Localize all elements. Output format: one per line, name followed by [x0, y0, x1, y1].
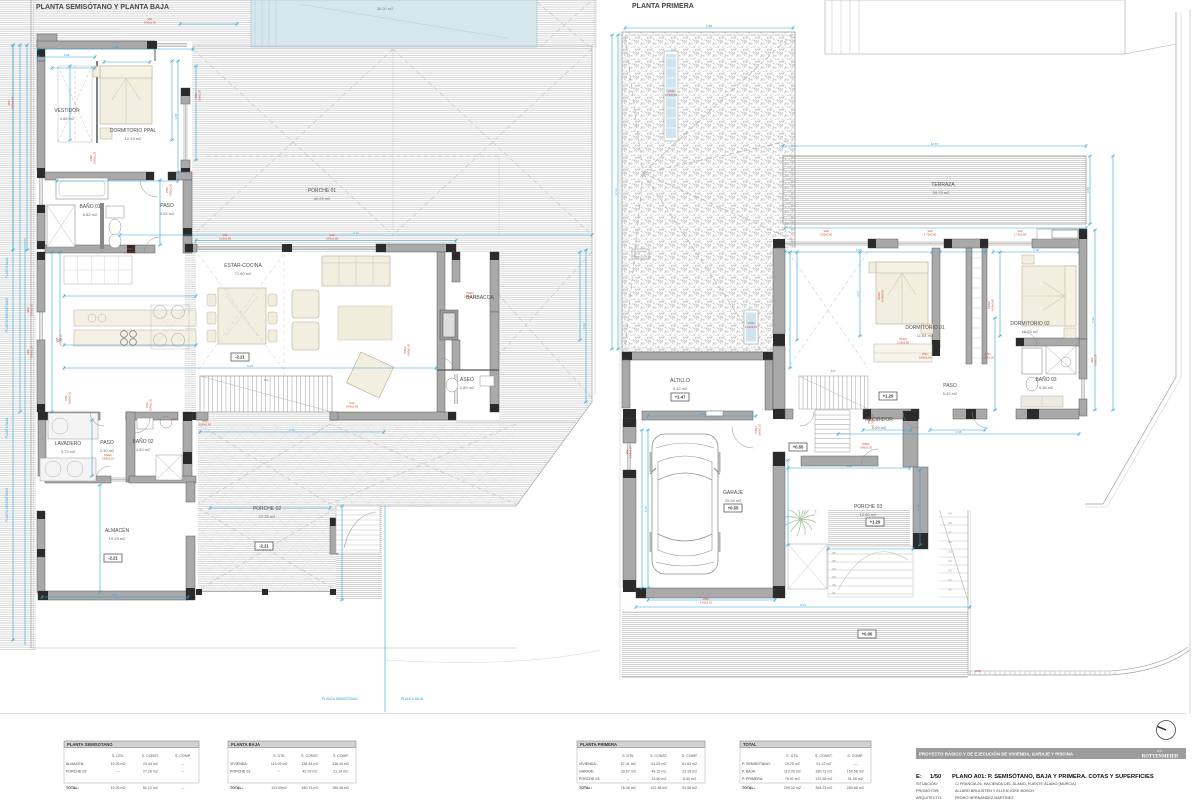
svg-text:29.26 m2: 29.26 m2 — [725, 498, 742, 503]
svg-text:2.89 m2: 2.89 m2 — [460, 385, 475, 390]
svg-text:39.67 m2: 39.67 m2 — [621, 770, 636, 774]
svg-text:TOTAL:: TOTAL: — [579, 786, 592, 790]
svg-text:0.90x2.20: 0.90x2.20 — [197, 89, 201, 102]
svg-text:ALLARD BRUIJSTEN Y ELLEN JOKE: ALLARD BRUIJSTEN Y ELLEN JOKE BOSCH — [955, 789, 1034, 793]
svg-text:0.90x2.20: 0.90x2.20 — [29, 303, 33, 316]
svg-text:06: 06 — [948, 540, 952, 544]
svg-text:BARBACOA: BARBACOA — [466, 295, 494, 301]
svg-text:MYL: MYL — [1157, 750, 1164, 753]
svg-text:36.00 m2: 36.00 m2 — [377, 6, 394, 11]
svg-text:ALMACÉN:: ALMACÉN: — [66, 761, 84, 766]
svg-text:138.44 m2: 138.44 m2 — [301, 762, 318, 766]
svg-text:19.25 m2: 19.25 m2 — [109, 536, 126, 541]
svg-text:TOTAL:: TOTAL: — [66, 786, 79, 790]
svg-text:12.15 m2: 12.15 m2 — [125, 136, 142, 141]
svg-text:+1.29: +1.29 — [870, 520, 881, 525]
svg-text:PASO: PASO — [100, 440, 114, 446]
svg-text:PEDRO HERNÁNDEZ MARTÍNEZ: PEDRO HERNÁNDEZ MARTÍNEZ — [955, 796, 1014, 800]
svg-text:29.73 m2: 29.73 m2 — [933, 190, 950, 195]
svg-text:PLANTA BAJA: PLANTA BAJA — [5, 257, 9, 279]
svg-text:ESTAR-COCINA: ESTAR-COCINA — [224, 263, 262, 269]
svg-text:06: 06 — [832, 551, 836, 555]
svg-text:PORCHE 02: PORCHE 02 — [253, 506, 282, 512]
svg-text:17.23: 17.23 — [614, 188, 618, 196]
svg-text:250.66 m2: 250.66 m2 — [847, 786, 864, 790]
svg-text:SITUACIÓN:: SITUACIÓN: — [916, 781, 938, 786]
svg-text:0.90x2.20: 0.90x2.20 — [168, 183, 172, 196]
svg-text:4.38 m2: 4.38 m2 — [1039, 385, 1054, 390]
svg-text:----: ---- — [853, 762, 859, 766]
svg-text:0.80x2.20: 0.80x2.20 — [982, 355, 995, 359]
svg-text:76.91 m2: 76.91 m2 — [785, 777, 800, 781]
svg-text:CM1: CM1 — [975, 669, 981, 673]
svg-text:PLANTA PRIMERA: PLANTA PRIMERA — [632, 3, 694, 10]
svg-text:S. COMP.: S. COMP. — [682, 754, 698, 758]
svg-text:07: 07 — [948, 531, 952, 535]
svg-text:03: 03 — [832, 575, 836, 579]
svg-text:-2.21: -2.21 — [235, 355, 245, 360]
svg-text:PLANTA BAJA: PLANTA BAJA — [5, 417, 9, 439]
svg-text:1.83: 1.83 — [64, 53, 70, 57]
svg-text:8.01: 8.01 — [800, 603, 806, 607]
svg-text:VIVIENDA:: VIVIENDA: — [579, 762, 597, 766]
svg-text:1.75x0.80: 1.75x0.80 — [924, 232, 937, 236]
svg-text:PASO: PASO — [160, 203, 174, 209]
svg-text:PLANO A01: P. SEMISÓTANO, BAJA: PLANO A01: P. SEMISÓTANO, BAJA Y PRIMERA… — [952, 772, 1154, 780]
svg-text:76.46 m2: 76.46 m2 — [621, 786, 636, 790]
svg-text:138.44 m2: 138.44 m2 — [332, 762, 349, 766]
svg-text:ALMACÉN: ALMACÉN — [105, 527, 130, 534]
svg-text:P. SEMISÓTANO:: P. SEMISÓTANO: — [742, 761, 771, 766]
svg-text:3.05x0.80: 3.05x0.80 — [820, 232, 833, 236]
svg-text:ASEO: ASEO — [460, 377, 474, 383]
svg-text:0.90x2.20: 0.90x2.20 — [628, 445, 632, 458]
svg-text:0.90x2.20: 0.90x2.20 — [10, 96, 14, 109]
svg-text:0.90x2.20: 0.90x2.20 — [124, 250, 137, 254]
svg-text:05: 05 — [832, 559, 836, 563]
svg-text:51.12 m2: 51.12 m2 — [143, 786, 158, 790]
svg-text:6.93: 6.93 — [1091, 317, 1095, 323]
svg-text:6.32: 6.32 — [289, 428, 295, 432]
svg-text:4.05x0.60: 4.05x0.60 — [880, 289, 884, 302]
svg-text:S. ÚTIL: S. ÚTIL — [112, 753, 124, 758]
svg-text:S. CONST.: S. CONST. — [815, 754, 833, 758]
svg-text:57.41 m2: 57.41 m2 — [621, 762, 636, 766]
svg-text:48.15 m2: 48.15 m2 — [651, 770, 666, 774]
svg-text:TOTAL:: TOTAL: — [230, 786, 243, 790]
svg-text:0.90x2.80: 0.90x2.80 — [326, 236, 339, 240]
svg-text:0.80x2.20: 0.80x2.20 — [67, 391, 71, 404]
svg-text:2.42: 2.42 — [916, 504, 920, 510]
svg-text:+1.29: +1.29 — [883, 394, 894, 399]
svg-text:1.75x0.80: 1.75x0.80 — [1014, 232, 1027, 236]
svg-text:180.73 m2: 180.73 m2 — [815, 770, 832, 774]
svg-text:5.03: 5.03 — [699, 412, 705, 416]
svg-text:0.90x2.90: 0.90x2.90 — [144, 20, 157, 24]
svg-text:51.12 m2: 51.12 m2 — [816, 762, 831, 766]
svg-text:04: 04 — [948, 559, 952, 563]
svg-text:PLANTA SEMISÓTANO: PLANTA SEMISÓTANO — [4, 488, 9, 522]
svg-text:0.80x2.10: 0.80x2.10 — [757, 423, 761, 436]
svg-text:GARAJE:: GARAJE: — [579, 770, 594, 774]
svg-text:0.80x2.20: 0.80x2.20 — [860, 445, 873, 449]
svg-text:0.80: 0.80 — [1086, 187, 1090, 193]
svg-text:02: 02 — [948, 578, 952, 582]
svg-text:113.09m2: 113.09m2 — [271, 786, 287, 790]
svg-text:DORMITORIO PPAL: DORMITORIO PPAL — [110, 128, 156, 134]
svg-text:PORCHE 02:: PORCHE 02: — [66, 770, 87, 774]
svg-text:159.38 m2: 159.38 m2 — [332, 786, 349, 790]
svg-text:S. ÚTIL: S. ÚTIL — [622, 753, 634, 758]
svg-text:6.21: 6.21 — [112, 593, 118, 597]
svg-text:-2.21: -2.21 — [108, 556, 118, 561]
svg-text:DORMITORIO 01: DORMITORIO 01 — [905, 325, 945, 331]
svg-text:PLANTA SEMISÓTANO: PLANTA SEMISÓTANO — [322, 696, 358, 701]
svg-text:ROTTENMEIER: ROTTENMEIER — [1142, 755, 1179, 760]
svg-text:0.90x2.20: 0.90x2.20 — [29, 345, 33, 358]
svg-text:TERRAZA: TERRAZA — [931, 182, 955, 188]
svg-text:42.29 m2: 42.29 m2 — [314, 196, 331, 201]
svg-text:71.60 m2: 71.60 m2 — [235, 271, 252, 276]
svg-text:10.93 m2: 10.93 m2 — [1022, 329, 1039, 334]
svg-text:3.47: 3.47 — [856, 291, 860, 297]
svg-text:2.30 m2: 2.30 m2 — [100, 448, 115, 453]
svg-text:19.25 m2: 19.25 m2 — [111, 786, 126, 790]
svg-text:0.80x2.20: 0.80x2.20 — [148, 398, 152, 411]
svg-text:PLANTA BAJA: PLANTA BAJA — [401, 697, 424, 701]
svg-text:TOTAL: TOTAL — [743, 742, 757, 747]
svg-text:5.45: 5.45 — [644, 506, 648, 512]
svg-text:1/50: 1/50 — [930, 774, 941, 780]
svg-text:3.00x2.80: 3.00x2.80 — [219, 236, 232, 240]
svg-text:23.44 m2: 23.44 m2 — [143, 762, 158, 766]
svg-text:4.50 m2: 4.50 m2 — [136, 447, 151, 452]
svg-text:8.62: 8.62 — [582, 323, 586, 329]
svg-text:0.80x2.20: 0.80x2.20 — [919, 355, 932, 359]
svg-text:2.05x2.80: 2.05x2.80 — [897, 340, 910, 344]
svg-text:PORCHE 03:: PORCHE 03: — [579, 777, 600, 781]
svg-text:4.05x0.60: 4.05x0.60 — [990, 298, 994, 311]
svg-text:6.88: 6.88 — [706, 24, 712, 28]
svg-text:BAÑO 03: BAÑO 03 — [1035, 376, 1056, 383]
svg-text:01: 01 — [832, 591, 836, 595]
svg-text:08: 08 — [948, 521, 952, 525]
svg-text:01: 01 — [948, 588, 952, 592]
svg-text:B11: B11 — [264, 378, 269, 382]
svg-text:4.90x2.10: 4.90x2.10 — [700, 600, 713, 604]
svg-text:4.21: 4.21 — [846, 464, 852, 468]
svg-text:5.09 m2: 5.09 m2 — [872, 425, 887, 430]
svg-text:C/ FRANCIA 26, HACIENDA DEL ÁL: C/ FRANCIA 26, HACIENDA DEL ÁLAMO, FUENT… — [955, 782, 1077, 786]
svg-text:27.25 m2: 27.25 m2 — [259, 514, 276, 519]
svg-text:VIVIENDA:: VIVIENDA: — [230, 762, 248, 766]
svg-text:TOTAL:: TOTAL: — [742, 786, 755, 790]
svg-text:PV2: PV2 — [172, 417, 178, 421]
svg-text:PLANTA PRIMERA: PLANTA PRIMERA — [580, 742, 617, 747]
svg-text:6.32: 6.32 — [353, 231, 359, 235]
svg-text:122.38 m2: 122.38 m2 — [650, 786, 667, 790]
svg-text:0.80x2.10: 0.80x2.10 — [102, 456, 115, 460]
svg-text:3.73 m2: 3.73 m2 — [61, 449, 76, 454]
svg-text:0.90x1.20: 0.90x1.20 — [58, 333, 62, 346]
svg-text:PLANTA SEMISOTANO: PLANTA SEMISOTANO — [67, 742, 113, 747]
svg-text:12.60 m2: 12.60 m2 — [860, 512, 877, 517]
svg-text:LAVADERO: LAVADERO — [55, 441, 82, 447]
svg-text:P. BAJA:: P. BAJA: — [742, 770, 756, 774]
svg-text:21.14 m2: 21.14 m2 — [333, 770, 348, 774]
svg-text:5.29: 5.29 — [247, 364, 253, 368]
svg-text:6.30 m2: 6.30 m2 — [683, 777, 696, 781]
svg-text:6.49: 6.49 — [113, 45, 119, 49]
svg-text:PLANTA BAJA: PLANTA BAJA — [231, 742, 260, 747]
svg-text:S. CONST.: S. CONST. — [142, 754, 160, 758]
svg-text:0.90x2.20: 0.90x2.20 — [92, 151, 96, 164]
svg-text:B13: B13 — [831, 369, 836, 373]
svg-text:ALTILLO: ALTILLO — [670, 378, 690, 384]
svg-text:ARQUITECTO:: ARQUITECTO: — [916, 796, 942, 800]
svg-text:6.82 m2: 6.82 m2 — [83, 212, 98, 217]
svg-text:PORCHE 03: PORCHE 03 — [854, 504, 883, 510]
svg-text:VESTIDOR: VESTIDOR — [54, 108, 80, 114]
svg-text:23.15 m2: 23.15 m2 — [682, 770, 697, 774]
svg-text:S. COMP.: S. COMP. — [175, 754, 191, 758]
svg-text:-2.21: -2.21 — [259, 544, 269, 549]
svg-text:354.23 m2: 354.23 m2 — [815, 786, 832, 790]
svg-text:+1.47: +1.47 — [675, 395, 686, 400]
svg-text:S. ÚTIL: S. ÚTIL — [273, 753, 285, 758]
svg-text:DORMITORIO 02: DORMITORIO 02 — [1010, 321, 1050, 327]
svg-text:3.08: 3.08 — [174, 113, 178, 119]
svg-text:61.63 m2: 61.63 m2 — [682, 762, 697, 766]
svg-text:GARAJE: GARAJE — [723, 490, 744, 496]
svg-text:S. CONST.: S. CONST. — [650, 754, 668, 758]
svg-text:91.08 m2: 91.08 m2 — [848, 777, 863, 781]
svg-text:S. COMP.: S. COMP. — [333, 754, 349, 758]
svg-text:05: 05 — [948, 550, 952, 554]
svg-text:S. ÚTIL: S. ÚTIL — [786, 753, 798, 758]
svg-text:PLANTA SEMISÓTANO Y PLANTA BAJ: PLANTA SEMISÓTANO Y PLANTA BAJA — [36, 2, 169, 11]
svg-text:11.64 m2: 11.64 m2 — [917, 333, 934, 338]
svg-text:180.73 m2: 180.73 m2 — [301, 786, 318, 790]
svg-text:BAÑO 02: BAÑO 02 — [132, 438, 153, 445]
svg-text:03: 03 — [948, 569, 952, 573]
svg-text:0.90x2.80: 0.90x2.80 — [346, 404, 359, 408]
svg-text:91.08 m2: 91.08 m2 — [682, 786, 697, 790]
svg-text:0.90x2.90: 0.90x2.90 — [199, 422, 212, 426]
svg-text:3.70x0.60: 3.70x0.60 — [665, 93, 678, 97]
svg-text:0.80x2.20: 0.80x2.20 — [406, 343, 410, 356]
svg-text:1.10x1.10: 1.10x1.10 — [745, 325, 758, 329]
svg-text:PORCHE 01:: PORCHE 01: — [230, 770, 251, 774]
svg-text:PROMOTOR:: PROMOTOR: — [916, 789, 939, 793]
svg-text:27.28 m2: 27.28 m2 — [143, 770, 158, 774]
svg-text:19.25 m2: 19.25 m2 — [785, 762, 800, 766]
svg-text:4.66 m2: 4.66 m2 — [60, 116, 75, 121]
svg-text:PASO: PASO — [943, 383, 957, 389]
svg-text:2.02 m2: 2.02 m2 — [160, 211, 175, 216]
svg-text:159.58 m2: 159.58 m2 — [847, 770, 864, 774]
svg-text:2.68: 2.68 — [956, 430, 962, 434]
svg-text:113.09 m2: 113.09 m2 — [784, 770, 801, 774]
svg-text:+0.00: +0.00 — [862, 632, 873, 637]
svg-text:PORCHE 01: PORCHE 01 — [308, 188, 337, 194]
svg-text:04: 04 — [832, 567, 836, 571]
svg-text:PLANTA SEMISÓTANO: PLANTA SEMISÓTANO — [4, 298, 9, 332]
svg-text:19.25 m2: 19.25 m2 — [111, 762, 126, 766]
svg-text:S. COMP.: S. COMP. — [847, 754, 863, 758]
svg-text:PROYECTO BÁSICO Y DE EJECUCIÓN: PROYECTO BÁSICO Y DE EJECUCIÓN DE VIVIEN… — [919, 752, 1074, 757]
svg-text:9.42 m2: 9.42 m2 — [673, 386, 688, 391]
svg-text:61.63 m2: 61.63 m2 — [651, 762, 666, 766]
svg-text:0.90x1.60: 0.90x1.60 — [1093, 353, 1097, 366]
svg-text:113.09 m2: 113.09 m2 — [271, 762, 288, 766]
svg-text:42.29 m2: 42.29 m2 — [302, 770, 317, 774]
svg-text:209.32 m2: 209.32 m2 — [784, 786, 801, 790]
svg-text:BAÑO 01: BAÑO 01 — [79, 203, 100, 210]
svg-text:+0.55: +0.55 — [728, 506, 739, 511]
svg-text:P. PRIMERA:: P. PRIMERA: — [742, 777, 763, 781]
svg-text:10.87: 10.87 — [931, 142, 939, 146]
svg-text:02: 02 — [832, 583, 836, 587]
svg-text:+0.55: +0.55 — [793, 445, 804, 450]
svg-text:1.18: 1.18 — [1033, 248, 1039, 252]
svg-text:RECIBIDOR: RECIBIDOR — [865, 417, 893, 423]
svg-text:12.60 m2: 12.60 m2 — [651, 777, 666, 781]
svg-text:E:: E: — [916, 774, 922, 780]
svg-text:S. CONST.: S. CONST. — [301, 754, 319, 758]
svg-text:09: 09 — [948, 512, 952, 516]
svg-text:5.42 m2: 5.42 m2 — [943, 391, 958, 396]
svg-text:122.38 m2: 122.38 m2 — [815, 777, 832, 781]
